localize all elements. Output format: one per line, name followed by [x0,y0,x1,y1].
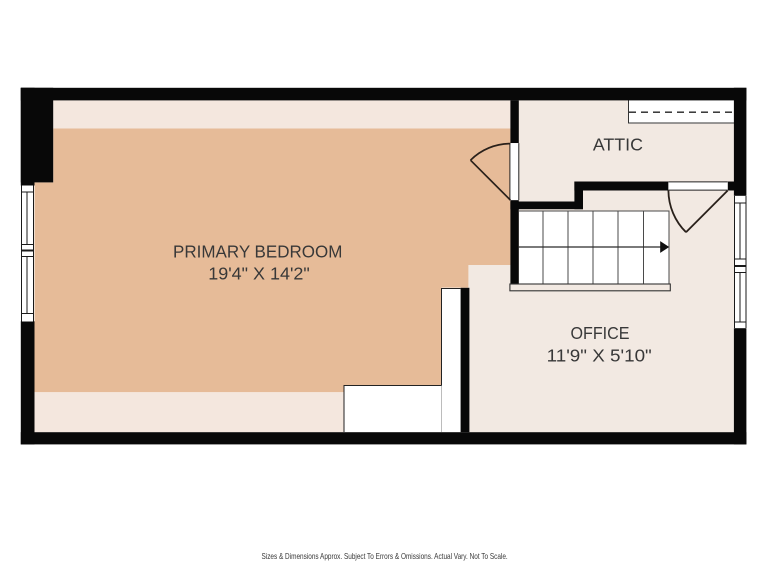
svg-text:Sizes & Dimensions Approx. Sub: Sizes & Dimensions Approx. Subject To Er… [262,552,508,561]
svg-text:PRIMARY BEDROOM: PRIMARY BEDROOM [173,241,342,261]
svg-text:11'9" X 5'10": 11'9" X 5'10" [547,345,652,365]
svg-text:ATTIC: ATTIC [593,135,643,155]
svg-text:19'4" X 14'2": 19'4" X 14'2" [208,264,310,284]
svg-text:OFFICE: OFFICE [570,323,629,343]
